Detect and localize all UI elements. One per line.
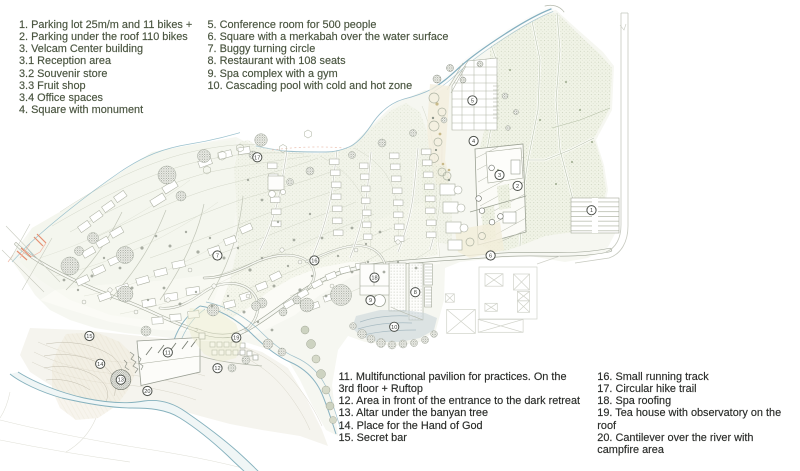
- svg-text:5: 5: [471, 98, 474, 104]
- svg-text:3: 3: [498, 173, 501, 179]
- svg-text:17: 17: [254, 155, 260, 161]
- svg-text:14: 14: [97, 362, 103, 368]
- svg-text:2: 2: [516, 184, 519, 190]
- svg-text:15: 15: [86, 334, 92, 340]
- svg-text:7: 7: [216, 254, 219, 260]
- svg-text:20: 20: [144, 389, 150, 395]
- svg-text:6: 6: [489, 254, 492, 260]
- svg-text:13: 13: [118, 378, 124, 384]
- svg-text:8: 8: [414, 290, 417, 296]
- svg-text:18: 18: [371, 276, 377, 282]
- svg-text:1: 1: [590, 208, 593, 214]
- svg-text:16: 16: [311, 259, 317, 265]
- svg-text:19: 19: [233, 336, 239, 342]
- svg-text:12: 12: [214, 366, 220, 372]
- svg-text:4: 4: [472, 139, 475, 145]
- svg-text:10: 10: [391, 325, 397, 331]
- svg-text:11: 11: [165, 350, 171, 356]
- svg-text:9: 9: [369, 298, 372, 304]
